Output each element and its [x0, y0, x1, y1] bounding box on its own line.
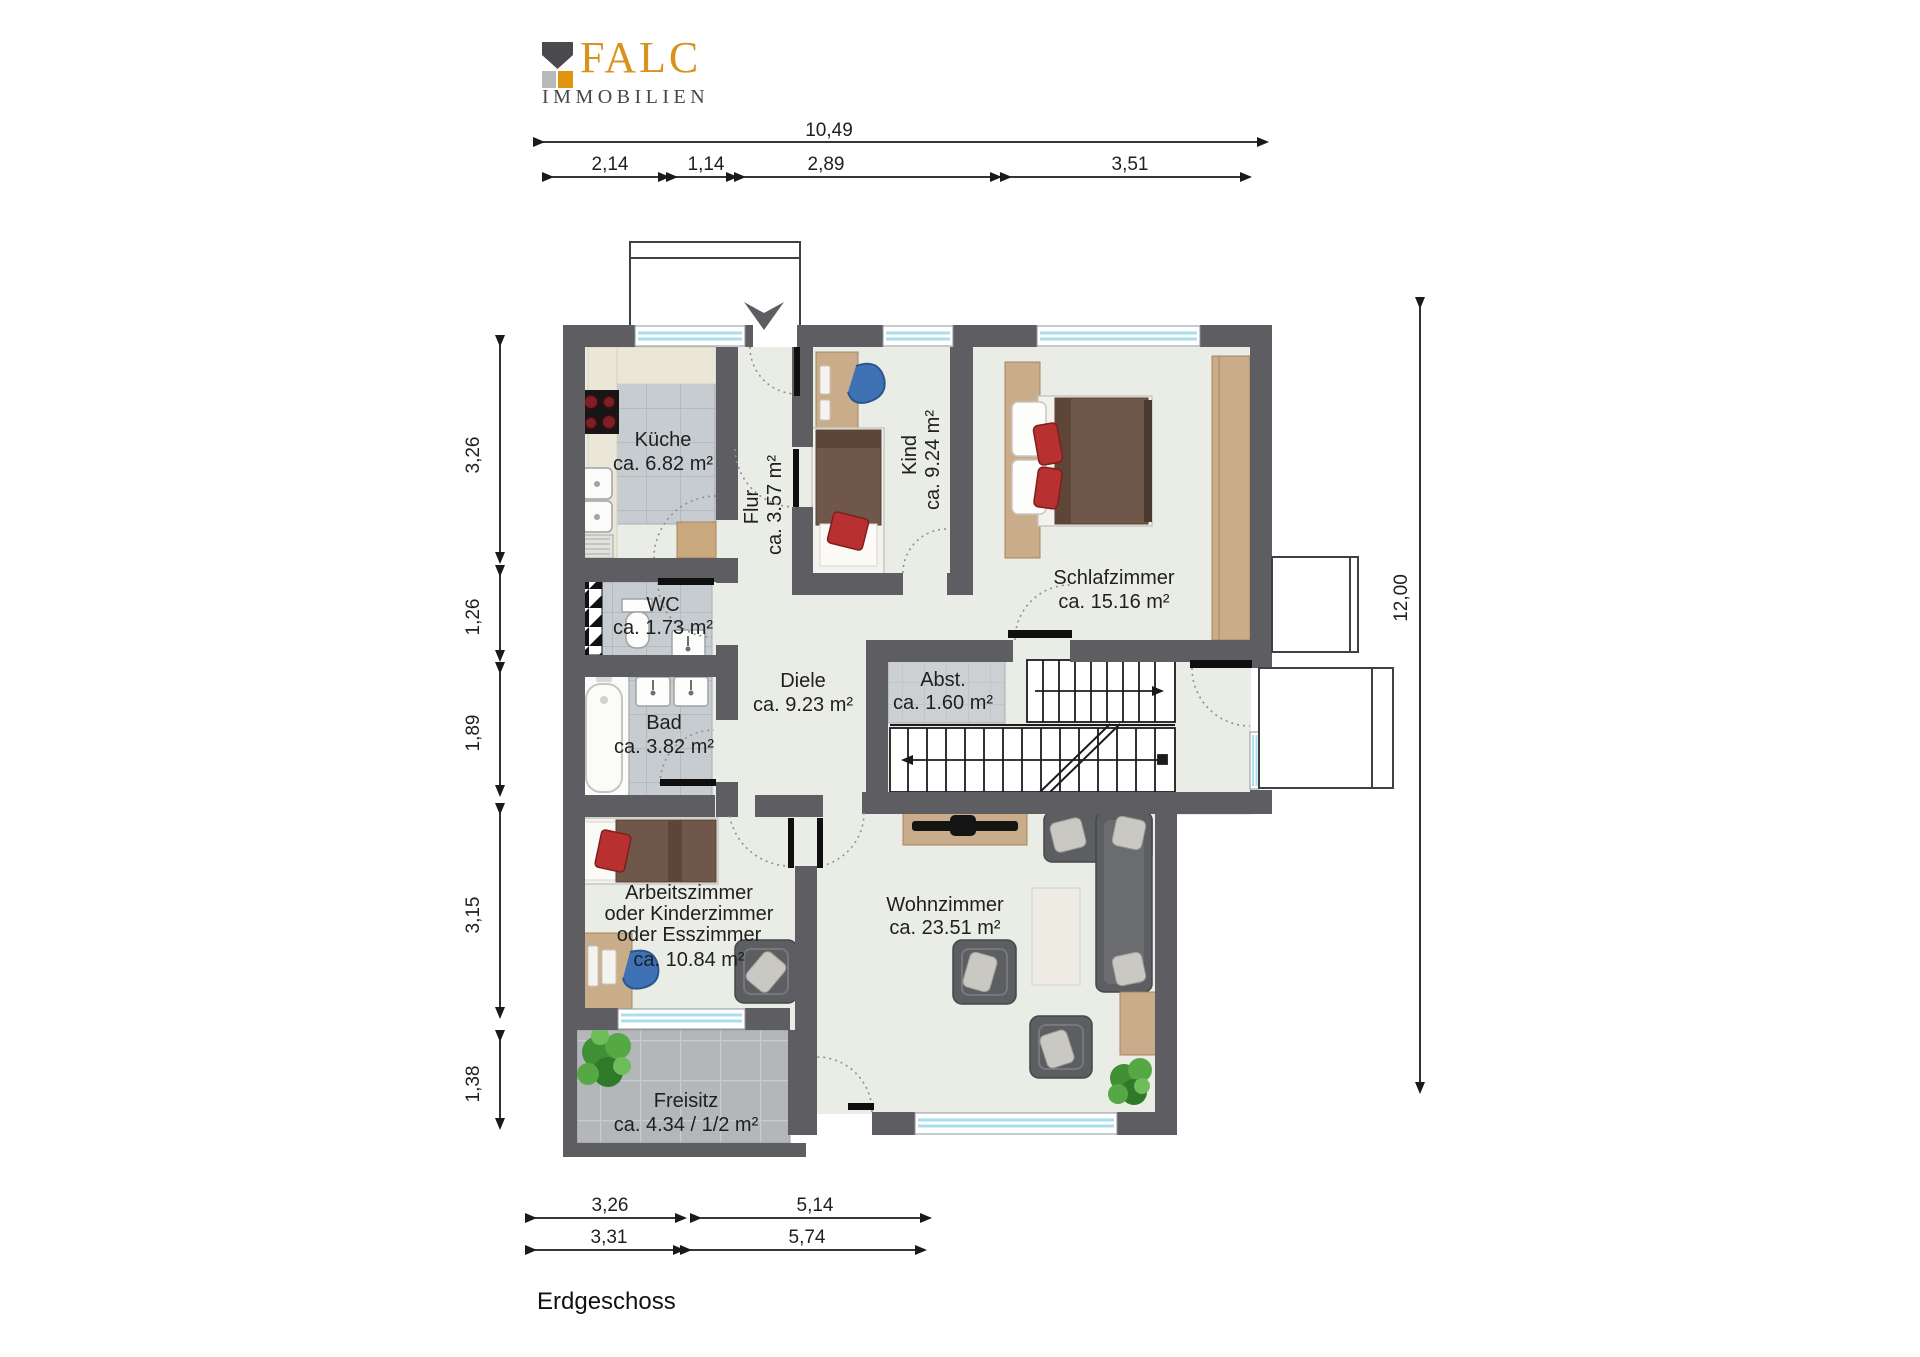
dim-bottom1-1: 3,26: [592, 1195, 629, 1216]
dim-right-total: 12,00: [1391, 574, 1412, 622]
label-wohnzimmer-area: ca. 23.51 m²: [889, 917, 1001, 939]
floorplan-page: FALC IMMOBILIEN Erdgeschoss: [0, 0, 1920, 1357]
dim-bottom1-2: 5,14: [797, 1195, 834, 1216]
side-terrace: [1272, 557, 1358, 652]
drainboard-icon: [581, 535, 613, 558]
label-schlafzimmer-area: ca. 15.16 m²: [1058, 591, 1170, 613]
label-kueche-area: ca. 6.82 m²: [613, 453, 713, 475]
label-diele: Diele: [780, 670, 826, 692]
dim-left-2: 1,26: [463, 599, 484, 636]
floorplan-drawing: 10,49 2,14 1,14 2,89 3,51 3,26 1,26 1,89…: [0, 0, 1920, 1357]
dim-top-total: 10,49: [805, 120, 853, 141]
window-kueche: [635, 326, 745, 346]
dim-top-2: 1,14: [688, 154, 725, 175]
label-flur-area: ca. 3.57 m²: [764, 455, 786, 555]
label-wohnzimmer: Wohnzimmer: [886, 894, 1004, 916]
label-freisitz: Freisitz: [654, 1090, 718, 1112]
dim-bottom2-1: 3,31: [591, 1227, 628, 1248]
kind-furniture: [812, 352, 885, 574]
window-schlafzimmer: [1037, 326, 1200, 346]
label-schlafzimmer: Schlafzimmer: [1053, 567, 1174, 589]
label-bad: Bad: [646, 712, 682, 734]
label-diele-area: ca. 9.23 m²: [753, 694, 853, 716]
label-arbeitszimmer-alt1: oder Kinderzimmer: [605, 903, 774, 925]
dim-top-1: 2,14: [592, 154, 629, 175]
dim-left-4: 3,15: [463, 897, 484, 934]
label-arbeitszimmer: Arbeitszimmer: [625, 882, 753, 904]
label-arbeitszimmer-alt2: oder Esszimmer: [617, 924, 762, 946]
label-kind: Kind: [899, 435, 921, 475]
label-kueche: Küche: [635, 429, 692, 451]
wardrobe-icon: [1212, 356, 1250, 640]
label-abst: Abst.: [920, 669, 966, 691]
label-bad-area: ca. 3.82 m²: [614, 736, 714, 758]
entry-sidelight: [1250, 732, 1259, 789]
label-kind-area: ca. 9.24 m²: [922, 410, 944, 510]
dim-left-3: 1,89: [463, 715, 484, 752]
window-arbeitszimmer: [618, 1009, 745, 1029]
side-table-icon: [1120, 992, 1158, 1055]
window-kind: [883, 326, 953, 346]
label-wc: WC: [646, 594, 679, 616]
label-abst-area: ca. 1.60 m²: [893, 692, 993, 714]
dim-top-3: 2,89: [808, 154, 845, 175]
dim-left-5: 1,38: [463, 1066, 484, 1103]
rug-icon: [1032, 888, 1080, 985]
label-flur: Flur: [741, 489, 763, 524]
label-wc-area: ca. 1.73 m²: [613, 617, 713, 639]
window-wohnzimmer: [915, 1113, 1117, 1134]
label-arbeitszimmer-area: ca. 10.84 m²: [633, 949, 745, 971]
dim-left-1: 3,26: [463, 437, 484, 474]
label-freisitz-area: ca. 4.34 / 1/2 m²: [614, 1114, 759, 1136]
dim-bottom2-2: 5,74: [789, 1227, 826, 1248]
dim-top-4: 3,51: [1112, 154, 1149, 175]
